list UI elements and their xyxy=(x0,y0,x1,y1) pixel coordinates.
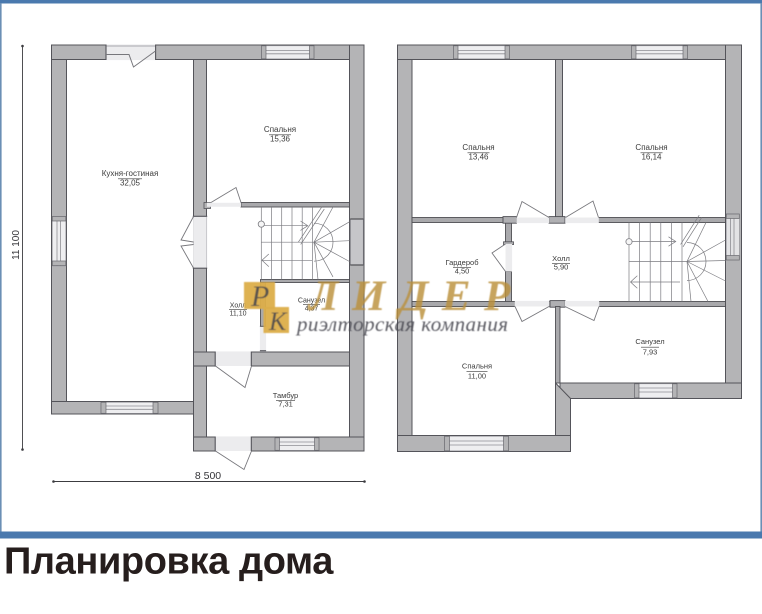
svg-text:15,36: 15,36 xyxy=(270,135,291,144)
svg-text:11 100: 11 100 xyxy=(11,230,22,260)
svg-text:11,00: 11,00 xyxy=(468,372,486,381)
svg-text:Спальня: Спальня xyxy=(264,125,296,134)
svg-text:К: К xyxy=(268,307,288,336)
svg-text:Планировка дома: Планировка дома xyxy=(4,541,334,583)
svg-text:риэлторская компания: риэлторская компания xyxy=(295,312,508,336)
svg-text:Холл: Холл xyxy=(230,303,247,310)
svg-text:13,46: 13,46 xyxy=(468,153,489,162)
svg-text:Спальня: Спальня xyxy=(462,362,492,371)
svg-text:5,90: 5,90 xyxy=(554,263,569,272)
svg-text:Санузел: Санузел xyxy=(635,337,664,346)
svg-text:Спальня: Спальня xyxy=(635,143,667,152)
svg-text:11,10: 11,10 xyxy=(230,311,247,318)
svg-text:8 500: 8 500 xyxy=(195,470,221,482)
svg-text:Кухня-гостиная: Кухня-гостиная xyxy=(102,169,159,178)
svg-text:16,14: 16,14 xyxy=(641,153,662,162)
svg-text:Спальня: Спальня xyxy=(462,143,494,152)
svg-text:32,05: 32,05 xyxy=(120,179,141,188)
svg-text:7,93: 7,93 xyxy=(643,348,658,357)
svg-text:Р: Р xyxy=(250,280,269,313)
svg-text:7,31: 7,31 xyxy=(278,400,293,409)
